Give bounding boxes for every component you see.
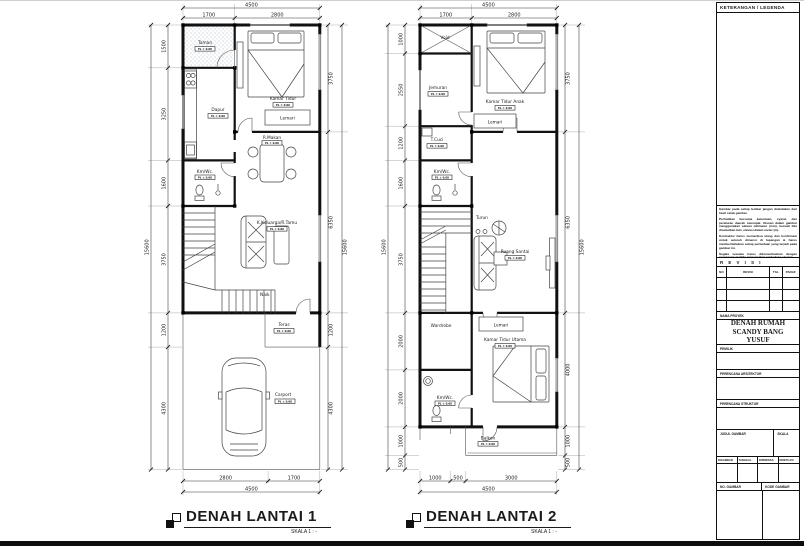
dim-label: 3000: [505, 476, 518, 482]
floor-plan-1: 4500 1700 2800 1500 3250 1600 3750 1200 …: [138, 0, 363, 505]
svg-text:PL ± 0.00: PL ± 0.00: [265, 141, 279, 145]
room-label: Km/Wc.: [197, 169, 213, 175]
room-label: K.Keluarga/R.Tamu: [257, 220, 297, 226]
col-no: NO: [717, 267, 727, 277]
sofa: [474, 230, 496, 291]
room-label: Wardrobe: [431, 323, 452, 329]
owner-label: PEMILIK: [717, 345, 799, 352]
room-label: Ruang Santai: [501, 249, 530, 255]
elevation-tag: PL ± 0.00: [262, 141, 282, 146]
dim-label: 15600: [382, 239, 388, 255]
drawing-title-label: JUDUL GAMBAR: [717, 430, 774, 437]
dim-label: 4500: [482, 3, 495, 9]
plan1-scale: SKALA 1 : -: [184, 529, 331, 535]
svg-text:PL ± 0.00: PL ± 0.00: [198, 47, 212, 51]
title-block: KETERANGAN / LEGENDA Gambar pada setiap …: [716, 2, 800, 540]
toilet: [195, 184, 220, 201]
dim-label: 4000: [566, 364, 572, 377]
dim-label: 500: [453, 476, 463, 482]
room-label: Km/Wc.: [434, 169, 450, 175]
project-name-label: NAMA PROYEK: [717, 312, 799, 319]
dim-label: 6350: [329, 216, 335, 229]
svg-text:PL ± 0.00: PL ± 0.00: [481, 442, 495, 446]
dim-label: 2550: [399, 84, 405, 97]
room-label: Void: [440, 35, 449, 41]
svg-text:PL ± 0.00: PL ± 0.00: [508, 256, 522, 260]
bedside-shelf: [474, 46, 480, 86]
room-label: Teras: [277, 322, 290, 328]
dim-label: 2800: [219, 476, 232, 482]
svg-text:PL ± 0.00: PL ± 0.00: [277, 329, 291, 333]
architect-label: PERENCANA ARSITEKTUR: [717, 370, 799, 377]
revision-row: [717, 300, 799, 311]
dim-label: 1000: [566, 435, 572, 448]
room-label: Km/Wc.: [437, 395, 453, 401]
svg-text:PL ± 0.00: PL ± 0.00: [198, 176, 212, 180]
elevation-tag: PL ± 0.00: [495, 344, 515, 349]
elevation-tag: PL ± 0.00: [274, 329, 294, 334]
elevation-tag: PL ± 0.00: [495, 106, 515, 111]
svg-text:PL ± 0.00: PL ± 0.00: [430, 144, 444, 148]
dim-label: 1000: [399, 435, 405, 448]
svg-text:PL ± 0.00: PL ± 0.00: [498, 344, 512, 348]
col-tgl: TGL: [770, 267, 782, 277]
dim-label: 1000: [399, 33, 405, 46]
dim-label: 1200: [399, 137, 405, 150]
structure-label: PERENCANA STRUKTUR: [717, 400, 799, 407]
architect-box: [717, 377, 799, 400]
dim-label: 2000: [399, 335, 405, 348]
col-revisi: REVISI: [727, 267, 770, 277]
svg-text:PL ± 0.00: PL ± 0.00: [270, 227, 284, 231]
toilet: [432, 184, 457, 201]
kitchen-counter: [185, 69, 197, 159]
elevation-tag: PL ± 0.00: [427, 144, 447, 149]
elevation-tag: PL ± 0.00: [435, 401, 455, 406]
dim-label: 4300: [329, 402, 335, 415]
plan2-title-text: DENAH LANTAI 2: [426, 508, 557, 525]
svg-text:PL ± 0.00: PL ± 0.00: [276, 103, 290, 107]
room-label: Balkon: [481, 436, 496, 442]
floor-plan-2: 4500 1700 2800 1000 2550 1200 1600 3750 …: [375, 0, 600, 505]
stairs: [420, 212, 472, 313]
elevation-tag: PL ± 0.00: [432, 175, 452, 180]
svg-text:PL ± 0.00: PL ± 0.00: [438, 402, 452, 406]
dim-label: 1600: [162, 177, 168, 190]
wash-basin: [422, 128, 432, 136]
room-label: Dapur: [211, 107, 224, 113]
drawing-number-label: NO. GAMBAR: [717, 483, 762, 490]
coffee-table: [274, 226, 289, 264]
scale-label: SKALA: [774, 430, 799, 437]
elevation-tag: PL ± 0.00: [505, 256, 525, 261]
elevation-tag: PL ± 0.00: [195, 47, 215, 52]
room-label: Kamar Tidur: [270, 96, 296, 102]
dim-label: 500: [566, 458, 572, 468]
revision-row: [717, 289, 799, 300]
owner-box: [717, 352, 799, 370]
dim-label: 1700: [439, 13, 452, 19]
plan2-title: DENAH LANTAI 2 SKALA 1 : -: [406, 508, 571, 535]
plan1-title-text: DENAH LANTAI 1: [186, 508, 317, 525]
revision-header-row: NO REVISI TGL PARAF: [717, 266, 799, 277]
col-paraf: PARAF: [783, 267, 799, 277]
elevation-tag: PL ± 0.00: [195, 175, 215, 180]
dim-label: 4500: [245, 3, 258, 9]
drawing-sheet: 4500 1700 2800 1500 3250 1600 3750 1200 …: [0, 0, 804, 551]
project-name: DENAH RUMAH SCANDY BANG YUSUF: [717, 319, 799, 345]
revision-table: NO REVISI TGL PARAF: [717, 266, 799, 312]
dim-label: 1500: [162, 40, 168, 53]
svg-text:PL ± 0.00: PL ± 0.00: [211, 114, 225, 118]
car: [219, 358, 270, 456]
sign-box-row: [717, 463, 799, 483]
dim-label: 1000: [429, 476, 442, 482]
elevation-tag: PL ± 0.00: [478, 442, 498, 447]
revisi-header: R E V I S I: [717, 258, 799, 266]
elevation-tag: PL ± 0.00: [208, 114, 228, 119]
sheet-border-bottom: [0, 541, 804, 546]
elevation-tag: PL ± 0.00: [275, 399, 295, 404]
dim-label: 500: [399, 458, 405, 468]
dim-label: 2800: [508, 13, 521, 19]
number-box-row: [717, 490, 799, 539]
dim-label: 15600: [343, 239, 349, 255]
elevation-tag: PL ± 0.00: [273, 103, 293, 108]
room-label: R.Makan: [263, 135, 282, 141]
room-label: Turun: [475, 215, 488, 221]
revision-row: [717, 277, 799, 288]
room-label: Lemari: [494, 323, 509, 329]
room-label: Lemari: [280, 116, 295, 122]
note-line: Gambar pada setiap lembar jangan diskala…: [719, 208, 797, 216]
drawing-title-box: [717, 437, 799, 457]
room-label: T.Cuci: [430, 137, 444, 143]
dim-label: 2000: [399, 392, 405, 405]
lounge-chair: [492, 221, 506, 235]
notes-block: Gambar pada setiap lembar jangan diskala…: [717, 206, 799, 258]
dim-label: 1200: [162, 324, 168, 337]
bed: [493, 346, 549, 402]
dim-label: 1700: [288, 476, 301, 482]
title-marker-icon: [406, 513, 421, 528]
elevation-tag: PL ± 0.00: [428, 92, 448, 97]
note-line: Kontraktor harus memeriksa ulang dan kon…: [719, 235, 797, 250]
elevation-tag: PL ± 0.00: [267, 227, 287, 232]
legend-area: [717, 13, 799, 206]
structure-box: [717, 407, 799, 430]
room-label: Taman: [197, 40, 212, 46]
room-label: Jemuran: [428, 85, 447, 91]
tv-cabinet: [546, 238, 555, 288]
room-label: Kamar Tidur Anak: [486, 99, 525, 105]
plan1-title: DENAH LANTAI 1 SKALA 1 : -: [166, 508, 331, 535]
dim-label: 4500: [245, 487, 258, 493]
dim-label: 3750: [566, 72, 572, 85]
drawing-title-row: JUDUL GAMBAR SKALA: [717, 430, 799, 437]
svg-text:PL ± 0.00: PL ± 0.00: [278, 400, 292, 404]
dim-label: 15600: [145, 239, 151, 255]
dim-label: 6350: [566, 216, 572, 229]
bed: [248, 31, 304, 97]
bedside-shelf: [237, 42, 243, 88]
legend-header: KETERANGAN / LEGENDA: [717, 3, 799, 13]
plan2-scale: SKALA 1 : -: [424, 529, 571, 535]
dim-label: 15600: [580, 239, 586, 255]
note-line: Perhatikan bersama ketentuan, syarat, da…: [719, 218, 797, 233]
room-label: Kamar Tidur Utama: [484, 337, 526, 343]
room-label: Lemari: [488, 120, 503, 126]
title-marker-icon: [166, 513, 181, 528]
room-label: Naik: [260, 292, 270, 298]
number-row: NO. GAMBAR KODE GAMBAR: [717, 483, 799, 490]
svg-text:PL ± 0.00: PL ± 0.00: [431, 92, 445, 96]
dim-label: 4300: [162, 402, 168, 415]
svg-text:PL ± 0.00: PL ± 0.00: [498, 106, 512, 110]
dim-label: 1200: [329, 324, 335, 337]
dining-table: [248, 144, 296, 182]
room-label: Carport: [275, 392, 292, 398]
dim-label: 3750: [399, 253, 405, 266]
bed: [487, 31, 545, 93]
dim-label: 3750: [162, 253, 168, 266]
dim-label: 2800: [271, 13, 284, 19]
drawing-code-label: KODE GAMBAR: [762, 483, 799, 490]
dim-label: 1600: [399, 177, 405, 190]
dim-label: 4500: [482, 487, 495, 493]
dim-label: 1700: [202, 13, 215, 19]
dim-label: 3750: [329, 72, 335, 85]
svg-text:PL ± 0.00: PL ± 0.00: [435, 176, 449, 180]
dim-label: 3250: [162, 108, 168, 121]
